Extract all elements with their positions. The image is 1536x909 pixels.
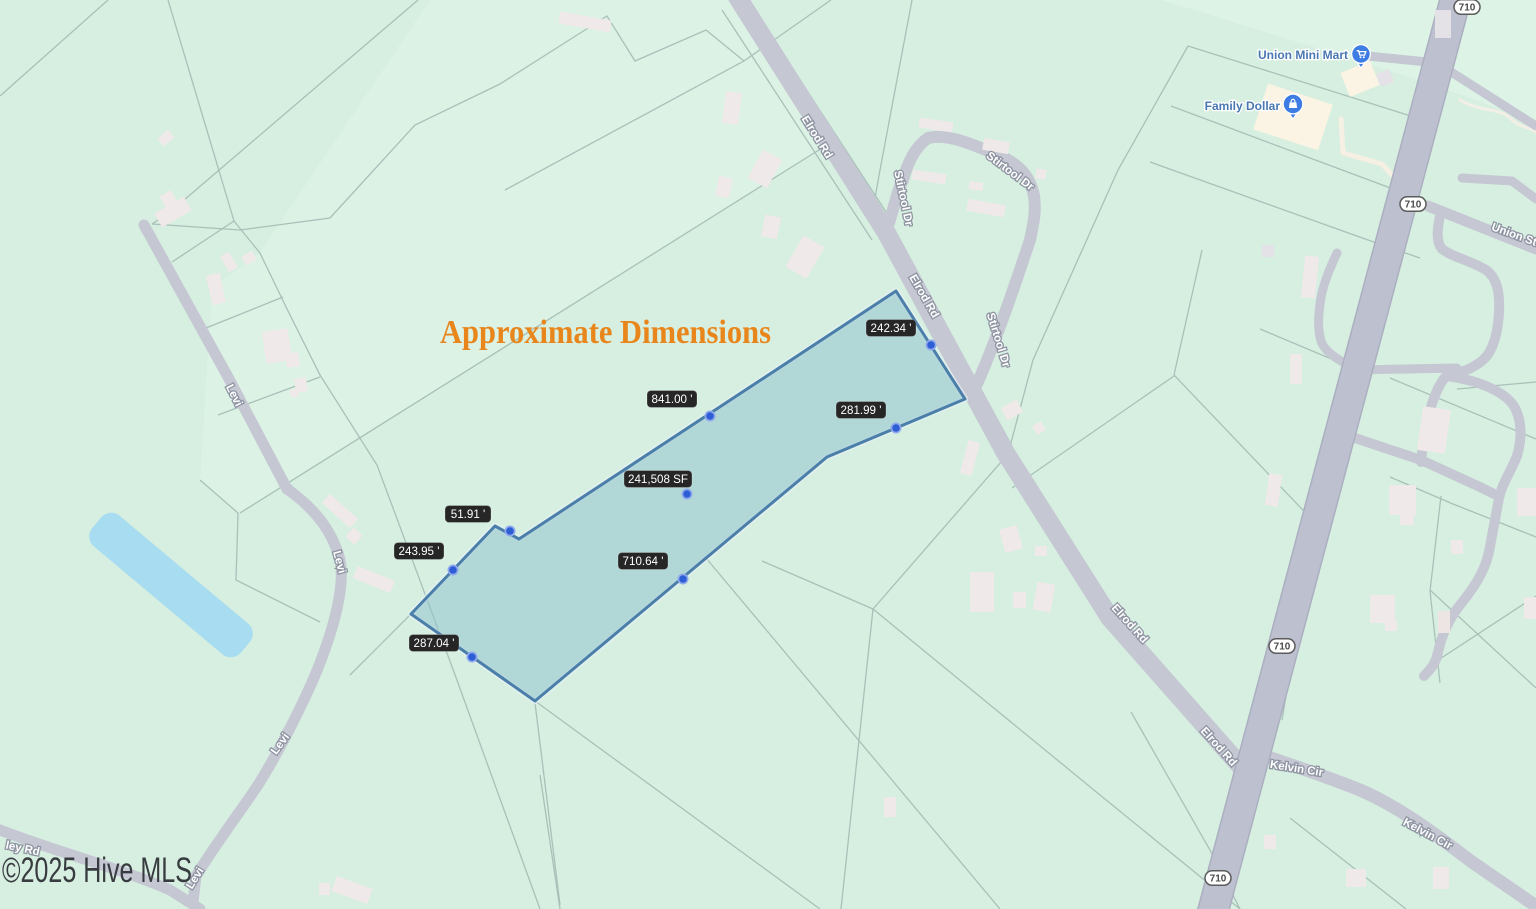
svg-text:287.04 ': 287.04 ' — [414, 637, 455, 650]
svg-text:281.99 ': 281.99 ' — [841, 404, 882, 417]
svg-text:710.64 ': 710.64 ' — [623, 555, 664, 568]
svg-text:241,508 SF: 241,508 SF — [628, 473, 688, 486]
svg-text:710: 710 — [1459, 2, 1476, 13]
svg-text:841.00 ': 841.00 ' — [652, 393, 693, 406]
svg-text:Union Mini Mart: Union Mini Mart — [1258, 48, 1348, 62]
svg-text:Family Dollar: Family Dollar — [1205, 99, 1281, 113]
svg-text:710: 710 — [1405, 199, 1422, 210]
svg-text:Approximate Dimensions: Approximate Dimensions — [440, 314, 771, 351]
svg-text:©2025 Hive MLS: ©2025 Hive MLS — [2, 851, 192, 890]
svg-text:243.95 ': 243.95 ' — [399, 545, 440, 558]
svg-text:710: 710 — [1210, 873, 1227, 884]
svg-text:710: 710 — [1274, 641, 1291, 652]
svg-text:51.91 ': 51.91 ' — [451, 508, 485, 521]
svg-text:242.34 ': 242.34 ' — [871, 322, 912, 335]
